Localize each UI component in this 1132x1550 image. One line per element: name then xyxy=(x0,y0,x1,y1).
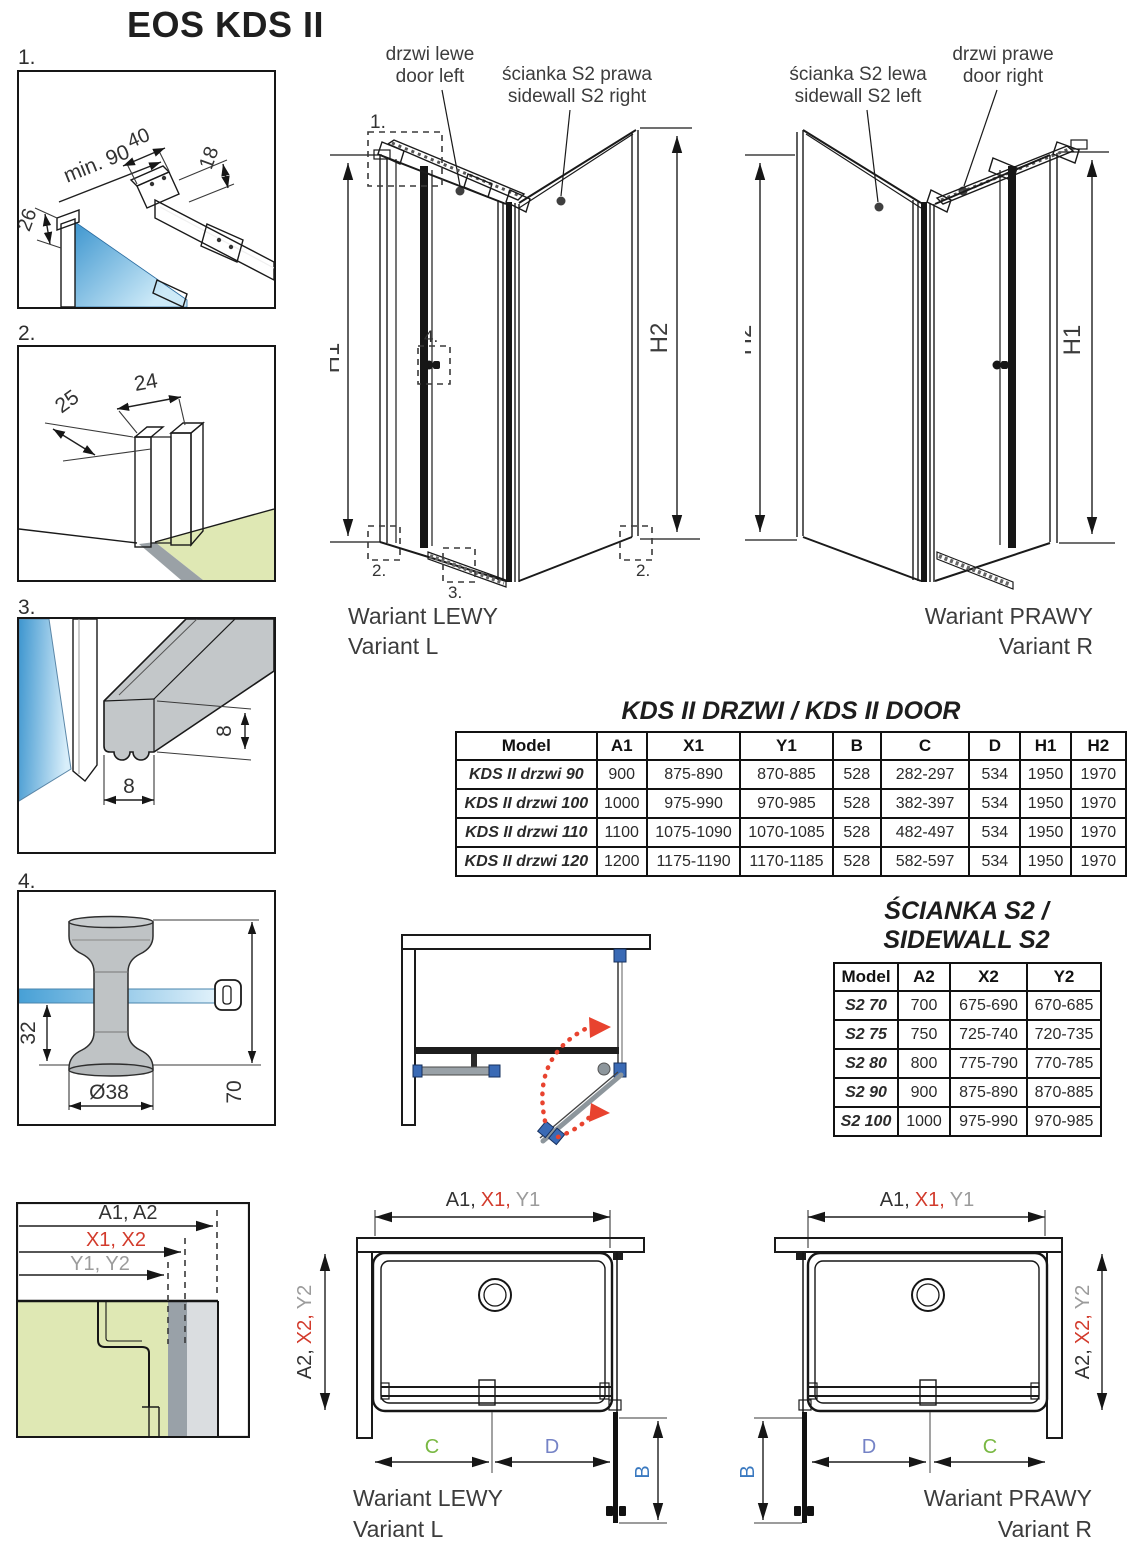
sidewall-panel xyxy=(745,130,921,581)
dim-x1: X1, xyxy=(481,1190,511,1211)
table-cell: 775-790 xyxy=(950,1049,1027,1078)
table-cell: KDS II drzwi 90 xyxy=(456,760,597,789)
sidewall-label-pl: ścianka S2 prawa xyxy=(502,64,652,85)
variant-caption-pl: Wariant LEWY xyxy=(348,603,498,629)
door-table-title: KDS II DRZWI / KDS II DOOR xyxy=(455,697,1127,726)
wall-fitting xyxy=(614,949,626,962)
dim-y1: Y1 xyxy=(950,1190,974,1211)
dim-a1-a2: A1, A2 xyxy=(99,1202,158,1224)
table-row: KDS II drzwi 110 1100 1075-1090 1070-108… xyxy=(456,818,1126,847)
dim-32: 32 xyxy=(19,1021,40,1044)
door-handle-icon xyxy=(425,361,434,370)
dim-d: D xyxy=(545,1436,559,1458)
corner-post xyxy=(498,200,519,582)
detail-1-drawing: min. 90 40 18 26 xyxy=(19,72,274,307)
page-title: EOS KDS II xyxy=(127,4,324,46)
floor-and-wall xyxy=(18,1301,218,1436)
svg-text:A1,X1,Y1: A1,X1,Y1 xyxy=(880,1190,975,1211)
detail-4-drawing: 32 70 Ø38 xyxy=(19,892,274,1124)
sidewall-label-pl: ścianka S2 lewa xyxy=(789,64,927,85)
plan-view-variant-left: A1,X1,Y1 A2,X2,Y2 xyxy=(295,1190,690,1550)
detail-2-number: 2. xyxy=(18,322,36,346)
svg-text:A2,X2,Y2: A2,X2,Y2 xyxy=(295,1285,316,1380)
dimensions: 24 25 xyxy=(45,369,185,461)
dim-y2: Y2 xyxy=(295,1285,316,1309)
table-cell: 382-397 xyxy=(881,789,969,818)
table-row: S2 80 800 775-790 770-785 xyxy=(834,1049,1101,1078)
table-header-row: Model A2 X2 Y2 xyxy=(834,963,1101,991)
door-label-en: door right xyxy=(963,66,1044,87)
depth-dimension: A2,X2,Y2 xyxy=(1072,1254,1102,1410)
table-cell: 534 xyxy=(969,847,1020,876)
leader-dot xyxy=(557,197,566,206)
glass-bar xyxy=(19,980,241,1010)
dim-8-vertical: 8 xyxy=(213,725,236,737)
ref-1: 1. xyxy=(370,112,386,133)
width-dimension: A1,X1,Y1 xyxy=(375,1190,610,1248)
column-header: H2 xyxy=(1071,732,1126,760)
dim-h1: H1 xyxy=(1059,325,1086,356)
table-cell: 975-990 xyxy=(647,789,740,818)
variant-caption-pl: Wariant PRAWY xyxy=(924,1485,1092,1511)
dim-b: B xyxy=(632,1465,654,1478)
table-row: KDS II drzwi 90 900 875-890 870-885 528 … xyxy=(456,760,1126,789)
table-cell: 875-890 xyxy=(950,1078,1027,1107)
table-row: KDS II drzwi 120 1200 1175-1190 1170-118… xyxy=(456,847,1126,876)
svg-text:A2,X2,Y2: A2,X2,Y2 xyxy=(1072,1285,1094,1380)
dim-y1: Y1 xyxy=(516,1190,540,1211)
glass-and-profile xyxy=(19,619,97,801)
table-cell: 725-740 xyxy=(950,1020,1027,1049)
door-handle-icon xyxy=(993,361,1002,370)
dim-40: 40 xyxy=(124,124,153,153)
dim-70: 70 xyxy=(223,1080,246,1103)
table-cell: 1100 xyxy=(597,818,647,847)
hinge-pivot xyxy=(598,1063,610,1075)
dim-25: 25 xyxy=(51,386,83,418)
sidewall-table-section: ŚCIANKA S2 / SIDEWALL S2 Model A2 X2 Y2 … xyxy=(833,897,1100,1137)
swing-arc xyxy=(542,1017,611,1137)
table-cell: S2 75 xyxy=(834,1020,898,1049)
table-cell: 1970 xyxy=(1071,847,1126,876)
table-row: KDS II drzwi 100 1000 975-990 970-985 52… xyxy=(456,789,1126,818)
caption: Wariant LEWY Variant L xyxy=(353,1485,503,1542)
table-row: S2 100 1000 975-990 970-985 xyxy=(834,1107,1101,1136)
table-cell: 800 xyxy=(898,1049,950,1078)
caption: Wariant PRAWY Variant R xyxy=(925,603,1093,659)
room-floor xyxy=(19,509,274,580)
variant-caption-pl: Wariant LEWY xyxy=(353,1485,503,1511)
table-cell: 1950 xyxy=(1020,847,1070,876)
table-cell: 870-885 xyxy=(1027,1078,1101,1107)
knob-icon xyxy=(794,1506,801,1516)
dim-a1: A1, xyxy=(880,1190,910,1211)
table-cell: 1950 xyxy=(1020,760,1070,789)
column-header: A1 xyxy=(597,732,647,760)
b-dimension: B xyxy=(619,1418,667,1523)
fixed-panel xyxy=(413,1047,619,1077)
table-cell: 534 xyxy=(969,818,1020,847)
table-cell: 528 xyxy=(833,789,881,818)
knob-icon xyxy=(606,1506,613,1516)
swing-arrow-icon xyxy=(589,1103,610,1122)
table-cell: 975-990 xyxy=(950,1107,1027,1136)
table-cell: S2 90 xyxy=(834,1078,898,1107)
column-header: A2 xyxy=(898,963,950,991)
b-dimension: B xyxy=(740,1418,802,1523)
dim-h1: H1 xyxy=(330,343,345,374)
table-cell: 1070-1085 xyxy=(740,818,832,847)
variant-caption-en: Variant L xyxy=(353,1516,444,1542)
variant-caption-en: Variant R xyxy=(999,633,1093,659)
dim-y2: Y2 xyxy=(1072,1285,1094,1309)
table-cell: 282-297 xyxy=(881,760,969,789)
sidewall-label-en: sidewall S2 right xyxy=(508,86,647,107)
dim-c: C xyxy=(425,1436,439,1458)
bottom-seal-profile xyxy=(104,619,274,760)
table-cell: 1950 xyxy=(1020,789,1070,818)
detail-4-box: 32 70 Ø38 xyxy=(17,890,276,1126)
door-label-pl: drzwi prawe xyxy=(952,44,1053,65)
table-cell: 1000 xyxy=(898,1107,950,1136)
datasheet-page: EOS KDS II 1. min. 90 xyxy=(0,0,1132,1550)
svg-text:A1,X1,Y1: A1,X1,Y1 xyxy=(446,1190,541,1211)
table-cell: 582-597 xyxy=(881,847,969,876)
table-cell: 534 xyxy=(969,789,1020,818)
column-header: C xyxy=(881,732,969,760)
ref-2b: 2. xyxy=(636,561,650,580)
sidewall-label-en: sidewall S2 left xyxy=(795,86,922,107)
table-row: S2 70 700 675-690 670-685 xyxy=(834,991,1101,1020)
table-row: S2 75 750 725-740 720-735 xyxy=(834,1020,1101,1049)
c-d-dimensions: D C xyxy=(812,1412,1045,1473)
table-cell: 750 xyxy=(898,1020,950,1049)
walls xyxy=(402,935,650,1125)
dim-h2: H2 xyxy=(745,325,757,356)
detail-1-number: 1. xyxy=(18,46,36,70)
table-cell: S2 100 xyxy=(834,1107,898,1136)
table-cell: 875-890 xyxy=(647,760,740,789)
sidewall-table-title-line2: SIDEWALL S2 xyxy=(833,926,1100,955)
column-header: Model xyxy=(834,963,898,991)
dim-a2: A2, xyxy=(295,1349,316,1379)
column-header: B xyxy=(833,732,881,760)
door-panel xyxy=(380,155,506,587)
dim-a2: A2, xyxy=(1072,1349,1094,1379)
table-cell: 528 xyxy=(833,847,881,876)
ref-2a: 2. xyxy=(372,561,386,580)
ref-3: 3. xyxy=(448,583,462,602)
table-cell: 870-885 xyxy=(740,760,832,789)
column-header: Model xyxy=(456,732,597,760)
detail-2-drawing: 24 25 xyxy=(19,347,274,580)
table-cell: 970-985 xyxy=(1027,1107,1101,1136)
table-cell: 770-785 xyxy=(1027,1049,1101,1078)
c-d-dimensions: C D xyxy=(375,1412,610,1473)
table-cell: 970-985 xyxy=(740,789,832,818)
ref-4: 4. xyxy=(424,327,438,346)
column-header: H1 xyxy=(1020,732,1070,760)
depth-dimension: A2,X2,Y2 xyxy=(295,1254,325,1410)
dim-min-90: min. 90 xyxy=(60,140,132,187)
dim-x1: X1, xyxy=(915,1190,945,1211)
iso-view-variant-right: ścianka S2 lewa sidewall S2 left drzwi p… xyxy=(745,40,1132,675)
table-cell: KDS II drzwi 100 xyxy=(456,789,597,818)
column-header: Y1 xyxy=(740,732,832,760)
dim-x2: X2, xyxy=(295,1314,316,1344)
table-cell: 482-497 xyxy=(881,818,969,847)
table-cell: S2 80 xyxy=(834,1049,898,1078)
table-cell: 534 xyxy=(969,760,1020,789)
dim-8-horizontal: 8 xyxy=(123,775,135,798)
table-cell: 528 xyxy=(833,760,881,789)
leader-dot xyxy=(875,203,884,212)
dim-c: C xyxy=(983,1436,997,1458)
door-label-en: door left xyxy=(396,66,465,87)
table-header-row: Model A1 X1 Y1 B C D H1 H2 xyxy=(456,732,1126,760)
stabilizer-bar xyxy=(927,140,1087,212)
corner-measure-detail: A1, A2 X1, X2 Y1, Y2 xyxy=(16,1202,250,1438)
detail-2-box: 24 25 xyxy=(17,345,276,582)
column-header: X2 xyxy=(950,963,1027,991)
table-cell: 1000 xyxy=(597,789,647,818)
plan-view-variant-right: A1,X1,Y1 A2,X2,Y2 xyxy=(740,1190,1132,1550)
door-label-pl: drzwi lewe xyxy=(386,44,475,65)
dim-18: 18 xyxy=(195,144,223,172)
table-cell: 1175-1190 xyxy=(647,847,740,876)
table-cell: 1075-1090 xyxy=(647,818,740,847)
dim-b: B xyxy=(740,1465,759,1478)
table-cell: 1970 xyxy=(1071,760,1126,789)
table-cell: 670-685 xyxy=(1027,991,1101,1020)
variant-caption-en: Variant L xyxy=(348,633,439,659)
table-cell: KDS II drzwi 110 xyxy=(456,818,597,847)
table-cell: 528 xyxy=(833,818,881,847)
table-cell: 900 xyxy=(898,1078,950,1107)
table-row: S2 90 900 875-890 870-885 xyxy=(834,1078,1101,1107)
variant-caption-en: Variant R xyxy=(998,1516,1092,1542)
column-header: D xyxy=(969,732,1020,760)
table-cell: 1170-1185 xyxy=(740,847,832,876)
door-panel xyxy=(935,153,1115,589)
sidewall-table-title-line1: ŚCIANKA S2 / xyxy=(833,897,1100,926)
width-dimension: A1,X1,Y1 xyxy=(808,1190,1045,1248)
detail-3-box: 8 8 xyxy=(17,617,276,854)
door-table-section: KDS II DRZWI / KDS II DOOR Model A1 X1 Y… xyxy=(455,697,1127,877)
dim-a1: A1, xyxy=(446,1190,476,1211)
dim-diameter-38: Ø38 xyxy=(89,1081,129,1104)
sidewall-glass xyxy=(598,949,626,1077)
wall-profile xyxy=(135,423,203,547)
dim-24: 24 xyxy=(132,369,159,396)
open-door xyxy=(538,1072,621,1145)
table-cell: 900 xyxy=(597,760,647,789)
table-cell: 700 xyxy=(898,991,950,1020)
table-cell: 1200 xyxy=(597,847,647,876)
caption: Wariant PRAWY Variant R xyxy=(924,1485,1092,1542)
plan-door-swing-view xyxy=(395,925,705,1180)
corner-post xyxy=(913,200,934,582)
swing-arrow-icon xyxy=(589,1017,611,1038)
table-cell: 1970 xyxy=(1071,818,1126,847)
column-header: X1 xyxy=(647,732,740,760)
table-cell: 1950 xyxy=(1020,818,1070,847)
table-cell: 1970 xyxy=(1071,789,1126,818)
detail-3-drawing: 8 8 xyxy=(19,619,274,852)
column-header: Y2 xyxy=(1027,963,1101,991)
dim-h2: H2 xyxy=(646,323,673,354)
variant-caption-pl: Wariant PRAWY xyxy=(925,603,1093,629)
stabilizer-bar xyxy=(374,140,530,212)
table-cell: S2 70 xyxy=(834,991,898,1020)
dim-x2: X2, xyxy=(1072,1314,1094,1344)
dim-y1-y2: Y1, Y2 xyxy=(70,1253,130,1275)
dim-x1-x2: X1, X2 xyxy=(86,1229,146,1251)
table-cell: 720-735 xyxy=(1027,1020,1101,1049)
iso-view-variant-left: drzwi lewe door left ścianka S2 prawa si… xyxy=(330,40,710,675)
table-cell: 675-690 xyxy=(950,991,1027,1020)
sidewall-table: Model A2 X2 Y2 S2 70 700 675-690 670-685… xyxy=(833,962,1102,1137)
caption: Wariant LEWY Variant L xyxy=(348,603,498,659)
door-table: Model A1 X1 Y1 B C D H1 H2 KDS II drzwi … xyxy=(455,731,1127,877)
table-cell: KDS II drzwi 120 xyxy=(456,847,597,876)
dim-d: D xyxy=(862,1436,876,1458)
detail-1-box: min. 90 40 18 26 xyxy=(17,70,276,309)
